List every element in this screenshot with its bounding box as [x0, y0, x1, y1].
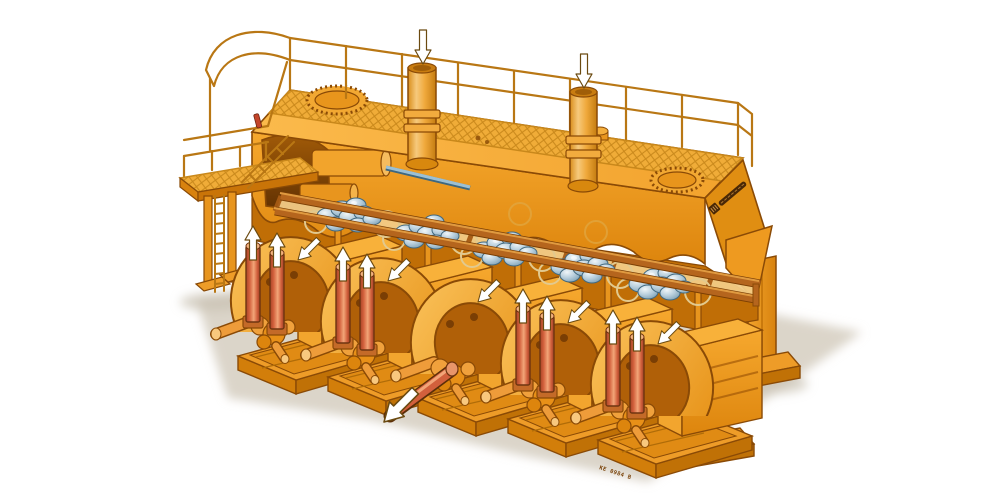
internal-cylinder	[312, 150, 386, 176]
vertical-cylinder	[566, 87, 601, 192]
illustration-canvas: KE 0984 B	[0, 0, 1000, 500]
vertical-cylinder	[404, 63, 440, 170]
manhole-cover	[651, 168, 703, 192]
machine-illustration: KE 0984 B	[0, 0, 1000, 500]
manhole-cover	[307, 86, 367, 114]
